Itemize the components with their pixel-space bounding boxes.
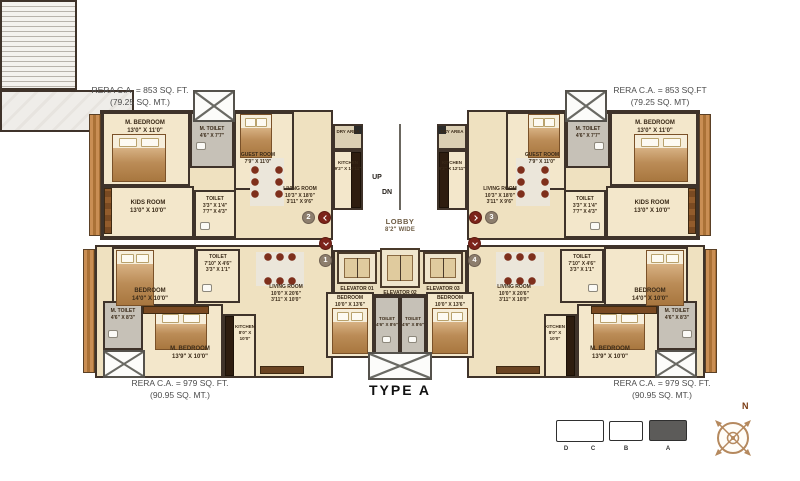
keyplan-label-c: C bbox=[588, 446, 598, 452]
flat-3-marker: 3 bbox=[485, 211, 498, 224]
keyplan-building-dc bbox=[556, 420, 604, 442]
wardrobe-icon bbox=[591, 306, 657, 314]
label-guest-room: GUEST ROOM7'9" X 11'0" bbox=[226, 152, 290, 165]
stairs-up-label: UP bbox=[368, 174, 386, 181]
label-bedroom-center-right: BEDROOM10'0" X 13'6" bbox=[422, 295, 478, 308]
label-kids-room: KIDS ROOM13'0" X 10'0" bbox=[104, 200, 192, 216]
label-bedroom: BEDROOM14'0" X 10'0" bbox=[608, 288, 692, 304]
shaft-x-box bbox=[103, 350, 145, 378]
elevator-02 bbox=[380, 248, 420, 288]
label-kitchen: KITCHEN8'0" X 10'0" bbox=[234, 324, 256, 342]
bed-icon bbox=[634, 134, 688, 182]
label-bedroom-center-left: BEDROOM10'0" X 13'6" bbox=[322, 295, 378, 308]
keyplan-label-d: D bbox=[561, 446, 571, 452]
x-cross-icon bbox=[657, 352, 695, 376]
toilet-fixture-icon bbox=[108, 330, 118, 338]
label-living-room: LIVING ROOM10'3" X 18'0"3'11" X 9'6" bbox=[460, 186, 540, 206]
flat-4-marker: 4 bbox=[468, 254, 481, 267]
label-toilet-center-left: TOILET4'6" X 8'6" bbox=[374, 316, 400, 328]
wardrobe-icon bbox=[143, 306, 209, 314]
entry-arrow-icon bbox=[469, 211, 482, 224]
x-cross-icon bbox=[370, 354, 430, 378]
x-cross-icon bbox=[105, 352, 143, 376]
flat-2-marker: 2 bbox=[302, 211, 315, 224]
toilet-fixture-icon bbox=[408, 336, 417, 343]
toilet-fixture-icon bbox=[202, 284, 212, 292]
label-toilet: TOILET3'3" X 1'4"7'7" X 4'3" bbox=[194, 196, 236, 216]
toilet-fixture-icon bbox=[682, 330, 692, 338]
label-toilet: TOILET7'10" X 4'6"3'3" X 1'1" bbox=[196, 254, 240, 274]
label-m-bedroom: M. BEDROOM13'0" X 11'0" bbox=[100, 120, 190, 136]
entry-arrow-icon bbox=[468, 237, 481, 250]
bed-icon bbox=[155, 310, 207, 350]
staircase bbox=[0, 0, 77, 90]
label-kitchen: KITCHEN9'2" X 12'11" bbox=[333, 160, 363, 172]
bed-icon bbox=[332, 308, 368, 354]
bed-icon bbox=[432, 308, 468, 354]
plan-title: TYPE A bbox=[330, 382, 470, 398]
keyplan-label-b: B bbox=[621, 446, 631, 452]
lobby-label: LOBBY 8'2" WIDE bbox=[363, 217, 437, 235]
label-toilet: TOILET3'3" X 1'4"7'7" X 4'3" bbox=[564, 196, 606, 216]
label-m-bedroom: M. BEDROOM13'9" X 10'0" bbox=[148, 346, 232, 362]
label-bedroom: BEDROOM14'0" X 10'0" bbox=[108, 288, 192, 304]
label-kitchen: KITCHEN8'0" X 10'0" bbox=[544, 324, 566, 342]
lobby-dims: 8'2" WIDE bbox=[363, 227, 437, 235]
keyplan-building-a-highlighted bbox=[649, 420, 687, 441]
elevator-02-label: ELEVATOR 02 bbox=[376, 290, 424, 297]
label-m-toilet: M. TOILET4'6" X 7'7" bbox=[188, 126, 236, 139]
balcony-strip bbox=[699, 114, 711, 236]
toilet-fixture-icon bbox=[200, 222, 210, 230]
elevator-01 bbox=[337, 252, 377, 284]
entry-arrow-icon bbox=[319, 237, 332, 250]
rera-bottom-left: RERA C.A. = 979 SQ. FT.(90.95 SQ. MT.) bbox=[105, 377, 255, 402]
rera-top-right: RERA C.A. = 853 SQ.FT(79.25 SQ. MT) bbox=[585, 84, 735, 109]
tv-unit-icon bbox=[260, 366, 304, 374]
elevator-01-label: ELEVATOR 01 bbox=[333, 286, 381, 293]
label-m-bedroom: M. BEDROOM13'9" X 10'0" bbox=[568, 346, 652, 362]
label-dry-area: DRY AREA bbox=[437, 129, 467, 135]
label-m-toilet: M. TOILET4'6" X 8'3" bbox=[655, 308, 699, 321]
floor-plan-canvas: UP DN LOBBY 8'2" WIDE ELEVATOR 01 ELEVAT… bbox=[0, 0, 800, 481]
tv-unit-icon bbox=[496, 366, 540, 374]
elevator-03 bbox=[423, 252, 463, 284]
label-guest-room: GUEST ROOM7'9" X 11'0" bbox=[510, 152, 574, 165]
bed-icon bbox=[593, 310, 645, 350]
entry-arrow-icon bbox=[318, 211, 331, 224]
toilet-fixture-icon bbox=[594, 142, 604, 150]
label-dry-area: DRY AREA bbox=[333, 129, 363, 135]
compass-rose-icon bbox=[707, 412, 759, 464]
compass-north-label: N bbox=[742, 401, 749, 411]
rera-top-left: RERA C.A. = 853 SQ. FT.(79.25 SQ. MT.) bbox=[65, 84, 215, 109]
rera-bottom-right: RERA C.A. = 979 SQ. FT.(90.95 SQ. MT.) bbox=[587, 377, 737, 402]
label-living-room: LIVING ROOM10'0" X 20'6"3'11" X 10'0" bbox=[482, 284, 546, 304]
toilet-fixture-icon bbox=[382, 336, 391, 343]
elevator-03-label: ELEVATOR 03 bbox=[419, 286, 467, 293]
balcony-strip bbox=[83, 249, 95, 373]
flat-1-marker: 1 bbox=[319, 254, 332, 267]
balcony-strip bbox=[705, 249, 717, 373]
stair-divider bbox=[399, 124, 401, 210]
keyplan-building-b bbox=[609, 421, 643, 441]
shaft-x-box bbox=[368, 352, 432, 380]
stairs-dn-label: DN bbox=[378, 189, 396, 196]
toilet-fixture-icon bbox=[590, 222, 600, 230]
dining-table-icon bbox=[496, 252, 544, 286]
toilet-fixture-icon bbox=[196, 142, 206, 150]
lobby-name: LOBBY bbox=[363, 217, 437, 227]
shaft-x-box bbox=[655, 350, 697, 378]
label-toilet: TOILET7'10" X 4'6"3'3" X 1'1" bbox=[560, 254, 604, 274]
label-toilet-center-right: TOILET4'6" X 8'6" bbox=[400, 316, 426, 328]
dining-table-icon bbox=[256, 252, 304, 286]
toilet-fixture-icon bbox=[588, 284, 598, 292]
bed-icon bbox=[112, 134, 166, 182]
label-m-bedroom: M. BEDROOM13'0" X 11'0" bbox=[610, 120, 700, 136]
label-kids-room: KIDS ROOM13'0" X 10'0" bbox=[608, 200, 696, 216]
label-m-toilet: M. TOILET4'6" X 7'7" bbox=[564, 126, 612, 139]
label-m-toilet: M. TOILET4'6" X 8'3" bbox=[101, 308, 145, 321]
label-living-room: LIVING ROOM10'0" X 20'6"3'11" X 10'0" bbox=[254, 284, 318, 304]
label-living-room: LIVING ROOM10'3" X 18'0"3'11" X 9'6" bbox=[260, 186, 340, 206]
label-kitchen: KITCHEN9'2" X 12'11" bbox=[437, 160, 467, 172]
keyplan-label-a: A bbox=[663, 446, 673, 452]
